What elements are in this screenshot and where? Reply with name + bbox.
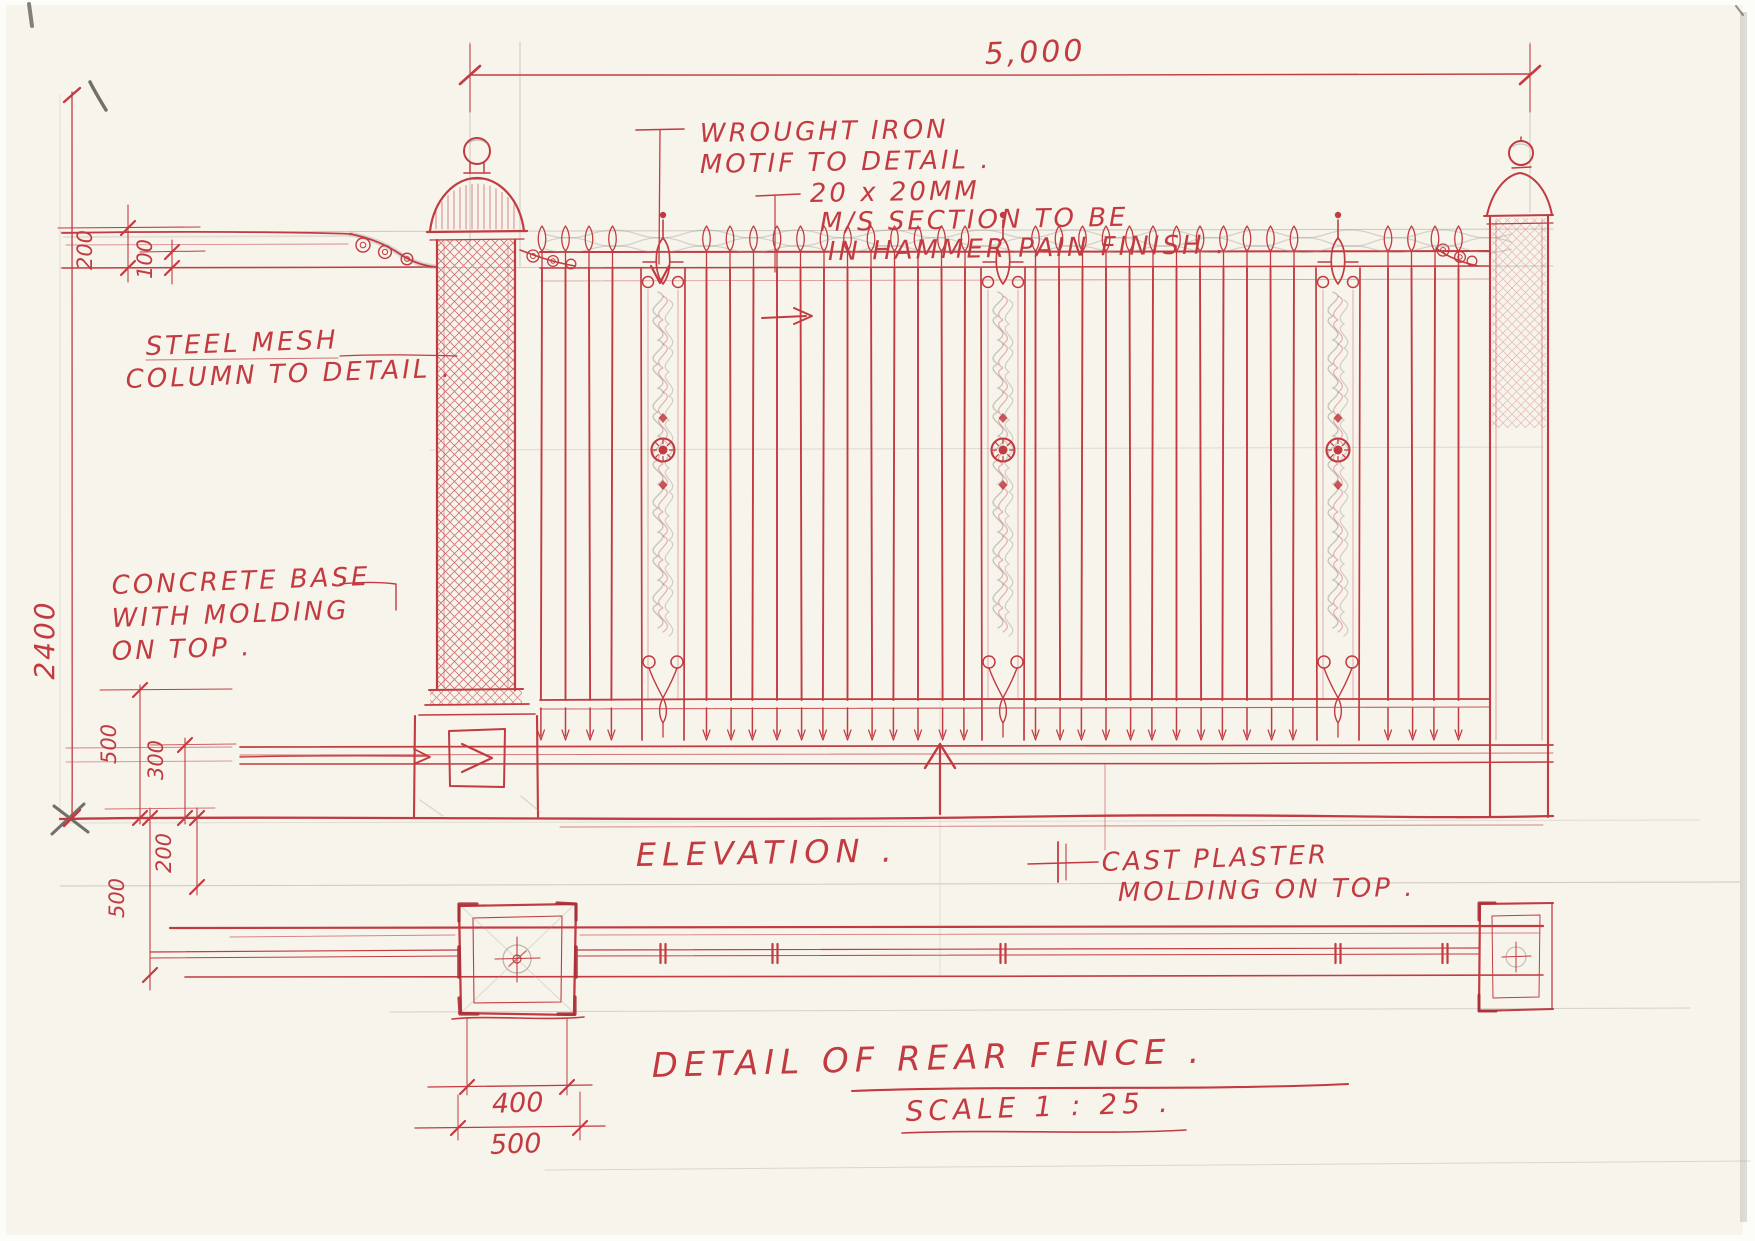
fence-bar bbox=[752, 268, 753, 700]
fence-bar bbox=[1200, 268, 1201, 700]
fence-bar bbox=[589, 268, 590, 700]
dim-plinth-height: 300 bbox=[144, 740, 168, 780]
column-base-left bbox=[414, 716, 415, 817]
dim-overall-height: 2400 bbox=[28, 600, 61, 679]
fence-bar bbox=[1293, 268, 1294, 700]
rosette-center bbox=[1334, 446, 1343, 455]
note-ms-section-1: 20 x 20MM bbox=[810, 176, 980, 209]
fence-bar bbox=[541, 268, 542, 700]
dim-base-height: 500 bbox=[97, 724, 121, 764]
scanned-sketch-page: 5,000 2400 200 100 500 300 bbox=[0, 0, 1755, 1241]
ornament-tip bbox=[1335, 212, 1341, 218]
fence-bar bbox=[871, 268, 872, 700]
dim-plan-fence-depth: 500 bbox=[105, 878, 129, 918]
dim-column-plan-width: 400 bbox=[491, 1087, 544, 1120]
fence-bar bbox=[964, 268, 965, 700]
column-mesh bbox=[437, 240, 515, 690]
note-wrought-iron-2: MOTIF TO DETAIL . bbox=[700, 145, 992, 180]
paper-right-edge bbox=[1740, 12, 1747, 1222]
rosette-center bbox=[659, 446, 668, 455]
dim-overall-width: 5,000 bbox=[984, 33, 1086, 71]
fence-bar bbox=[893, 268, 894, 700]
note-cast-plaster-2: MOLDING ON TOP . bbox=[1118, 873, 1416, 908]
dim-rail-offset: 200 bbox=[73, 230, 97, 270]
fence-bar bbox=[1434, 268, 1435, 700]
fence-bar bbox=[1412, 268, 1413, 700]
fence-detail-sketch: 5,000 2400 200 100 500 300 bbox=[0, 0, 1755, 1241]
fence-bar bbox=[1130, 268, 1131, 700]
column-base-right bbox=[537, 716, 538, 817]
fence-bar bbox=[1271, 268, 1272, 700]
note-concrete-base-3: ON TOP . bbox=[111, 632, 253, 667]
fence-bar bbox=[1152, 268, 1153, 700]
fence-bar bbox=[942, 268, 943, 700]
dim-column-plan-base-width: 500 bbox=[489, 1128, 542, 1161]
fence-bar bbox=[1222, 268, 1223, 700]
fence-bar bbox=[823, 268, 824, 700]
note-wrought-iron-1: WROUGHT IRON bbox=[700, 115, 949, 149]
fence-bar bbox=[1081, 268, 1082, 700]
fence-bar bbox=[801, 268, 802, 700]
fence-bar bbox=[611, 268, 612, 700]
fence-bar bbox=[1059, 268, 1060, 700]
rosette-center bbox=[999, 446, 1008, 455]
fence-bar bbox=[730, 268, 731, 700]
dim-plan-wall-depth: 200 bbox=[152, 833, 176, 873]
ornament-tip bbox=[660, 212, 666, 218]
elevation-label: ELEVATION . bbox=[635, 831, 898, 874]
